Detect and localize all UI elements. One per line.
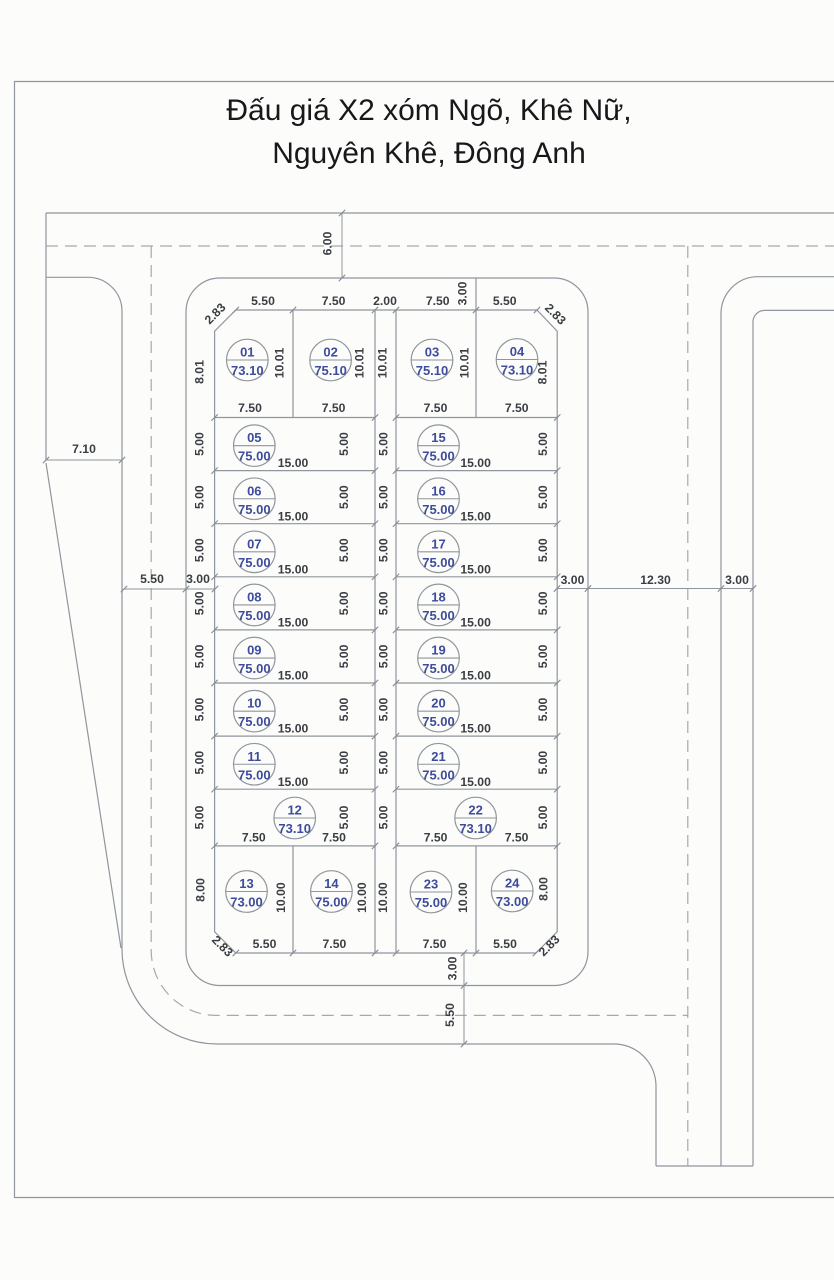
svg-text:17: 17 xyxy=(431,536,445,551)
svg-text:7.50: 7.50 xyxy=(426,294,450,308)
svg-text:2.00: 2.00 xyxy=(373,294,397,308)
svg-text:5.00: 5.00 xyxy=(376,751,390,775)
svg-text:5.00: 5.00 xyxy=(536,644,550,668)
svg-text:75.00: 75.00 xyxy=(238,555,271,570)
svg-text:73.10: 73.10 xyxy=(278,821,311,836)
svg-text:5.50: 5.50 xyxy=(140,572,164,586)
svg-text:2.83: 2.83 xyxy=(202,300,229,327)
svg-text:7.50: 7.50 xyxy=(323,937,347,951)
svg-text:05: 05 xyxy=(247,430,261,445)
svg-text:73.00: 73.00 xyxy=(230,895,263,910)
svg-text:7.50: 7.50 xyxy=(322,831,346,845)
svg-text:5.00: 5.00 xyxy=(536,751,550,775)
svg-text:5.00: 5.00 xyxy=(536,485,550,509)
svg-text:5.00: 5.00 xyxy=(536,805,550,829)
svg-text:5.00: 5.00 xyxy=(337,751,351,775)
svg-text:5.50: 5.50 xyxy=(253,937,277,951)
svg-text:5.00: 5.00 xyxy=(376,805,390,829)
svg-text:07: 07 xyxy=(247,536,261,551)
svg-text:5.00: 5.00 xyxy=(337,697,351,721)
svg-text:75.00: 75.00 xyxy=(238,714,271,729)
svg-text:73.10: 73.10 xyxy=(501,363,534,378)
svg-text:75.00: 75.00 xyxy=(422,555,455,570)
svg-text:2.83: 2.83 xyxy=(536,932,563,959)
svg-text:7.50: 7.50 xyxy=(424,401,448,415)
svg-text:2.83: 2.83 xyxy=(209,933,236,960)
svg-text:73.00: 73.00 xyxy=(496,894,529,909)
svg-text:6.00: 6.00 xyxy=(321,231,335,255)
svg-text:75.10: 75.10 xyxy=(416,363,449,378)
svg-text:5.00: 5.00 xyxy=(376,644,390,668)
svg-text:18: 18 xyxy=(431,589,445,604)
svg-text:12.30: 12.30 xyxy=(640,573,671,587)
svg-text:5.50: 5.50 xyxy=(251,294,275,308)
svg-text:5.00: 5.00 xyxy=(376,697,390,721)
svg-text:5.00: 5.00 xyxy=(337,644,351,668)
svg-text:01: 01 xyxy=(240,345,254,360)
svg-text:7.50: 7.50 xyxy=(242,831,266,845)
svg-text:75.00: 75.00 xyxy=(315,895,348,910)
svg-text:75.00: 75.00 xyxy=(422,608,455,623)
svg-text:5.00: 5.00 xyxy=(193,432,207,456)
svg-text:7.10: 7.10 xyxy=(72,442,96,456)
svg-text:Đấu giá X2 xóm Ngõ, Khê Nữ,: Đấu giá X2 xóm Ngõ, Khê Nữ, xyxy=(226,94,631,127)
svg-text:15.00: 15.00 xyxy=(278,722,309,736)
svg-text:75.00: 75.00 xyxy=(238,502,271,517)
svg-text:75.00: 75.00 xyxy=(238,449,271,464)
svg-text:75.00: 75.00 xyxy=(238,767,271,782)
svg-text:7.50: 7.50 xyxy=(322,294,346,308)
svg-text:8.01: 8.01 xyxy=(536,360,550,384)
svg-text:16: 16 xyxy=(431,483,445,498)
svg-text:10.01: 10.01 xyxy=(376,348,390,379)
svg-text:15.00: 15.00 xyxy=(278,509,309,523)
svg-text:7.50: 7.50 xyxy=(322,401,346,415)
svg-text:75.10: 75.10 xyxy=(314,363,347,378)
svg-text:20: 20 xyxy=(431,696,445,711)
svg-text:73.10: 73.10 xyxy=(459,821,492,836)
svg-text:24: 24 xyxy=(505,876,520,891)
svg-text:10.00: 10.00 xyxy=(355,882,369,913)
svg-text:5.50: 5.50 xyxy=(493,294,517,308)
svg-text:5.00: 5.00 xyxy=(193,591,207,615)
svg-text:15.00: 15.00 xyxy=(460,775,491,789)
svg-text:5.00: 5.00 xyxy=(536,538,550,562)
svg-text:08: 08 xyxy=(247,589,261,604)
svg-text:15.00: 15.00 xyxy=(278,562,309,576)
svg-text:5.00: 5.00 xyxy=(193,697,207,721)
svg-text:Nguyên Khê, Đông Anh: Nguyên Khê, Đông Anh xyxy=(272,137,586,170)
svg-text:5.00: 5.00 xyxy=(536,432,550,456)
svg-text:75.00: 75.00 xyxy=(238,661,271,676)
svg-text:8.00: 8.00 xyxy=(194,878,208,902)
svg-text:75.00: 75.00 xyxy=(422,767,455,782)
svg-text:7.50: 7.50 xyxy=(505,831,529,845)
svg-text:75.00: 75.00 xyxy=(415,895,448,910)
svg-text:5.00: 5.00 xyxy=(337,805,351,829)
svg-text:5.50: 5.50 xyxy=(493,937,517,951)
svg-text:3.00: 3.00 xyxy=(186,572,210,586)
svg-text:5.00: 5.00 xyxy=(376,432,390,456)
svg-text:2.83: 2.83 xyxy=(542,301,569,328)
svg-text:13: 13 xyxy=(239,876,253,891)
svg-text:19: 19 xyxy=(431,643,445,658)
svg-text:75.00: 75.00 xyxy=(238,608,271,623)
svg-text:14: 14 xyxy=(324,876,339,891)
svg-text:03: 03 xyxy=(425,345,439,360)
svg-text:15: 15 xyxy=(431,430,445,445)
svg-text:8.01: 8.01 xyxy=(193,360,207,384)
svg-text:22: 22 xyxy=(468,803,482,818)
svg-text:7.50: 7.50 xyxy=(423,937,447,951)
svg-text:15.00: 15.00 xyxy=(460,669,491,683)
svg-text:12: 12 xyxy=(287,803,301,818)
svg-text:02: 02 xyxy=(323,345,337,360)
svg-text:5.00: 5.00 xyxy=(193,485,207,509)
svg-text:5.00: 5.00 xyxy=(376,538,390,562)
svg-text:5.00: 5.00 xyxy=(337,591,351,615)
svg-text:8.00: 8.00 xyxy=(536,877,550,901)
svg-text:10.00: 10.00 xyxy=(274,882,288,913)
svg-text:15.00: 15.00 xyxy=(460,456,491,470)
svg-text:15.00: 15.00 xyxy=(460,616,491,630)
svg-text:75.00: 75.00 xyxy=(422,502,455,517)
svg-text:5.00: 5.00 xyxy=(536,697,550,721)
svg-text:75.00: 75.00 xyxy=(422,449,455,464)
svg-text:3.00: 3.00 xyxy=(725,573,749,587)
svg-text:06: 06 xyxy=(247,483,261,498)
svg-text:04: 04 xyxy=(510,344,525,359)
svg-text:10.01: 10.01 xyxy=(272,348,286,379)
svg-text:5.00: 5.00 xyxy=(536,591,550,615)
svg-text:10: 10 xyxy=(247,696,261,711)
svg-text:10.00: 10.00 xyxy=(456,882,470,913)
svg-text:5.00: 5.00 xyxy=(337,432,351,456)
svg-text:3.00: 3.00 xyxy=(456,281,470,305)
svg-text:5.00: 5.00 xyxy=(193,538,207,562)
svg-text:5.00: 5.00 xyxy=(376,485,390,509)
svg-text:3.00: 3.00 xyxy=(446,956,460,980)
svg-text:15.00: 15.00 xyxy=(278,775,309,789)
svg-text:10.01: 10.01 xyxy=(352,348,366,379)
svg-text:5.00: 5.00 xyxy=(193,805,207,829)
svg-text:75.00: 75.00 xyxy=(422,661,455,676)
svg-text:5.00: 5.00 xyxy=(337,538,351,562)
svg-text:73.10: 73.10 xyxy=(231,363,264,378)
svg-text:3.00: 3.00 xyxy=(561,573,585,587)
svg-text:5.00: 5.00 xyxy=(193,751,207,775)
svg-text:11: 11 xyxy=(247,749,261,764)
svg-text:5.00: 5.00 xyxy=(376,591,390,615)
svg-text:5.50: 5.50 xyxy=(443,1003,457,1027)
svg-text:7.50: 7.50 xyxy=(424,831,448,845)
svg-text:7.50: 7.50 xyxy=(238,401,262,415)
svg-text:09: 09 xyxy=(247,643,261,658)
svg-text:75.00: 75.00 xyxy=(422,714,455,729)
svg-text:5.00: 5.00 xyxy=(337,485,351,509)
svg-text:7.50: 7.50 xyxy=(505,401,529,415)
svg-text:15.00: 15.00 xyxy=(460,722,491,736)
svg-text:15.00: 15.00 xyxy=(278,616,309,630)
svg-text:21: 21 xyxy=(431,749,445,764)
svg-text:15.00: 15.00 xyxy=(278,456,309,470)
svg-text:10.01: 10.01 xyxy=(458,348,472,379)
svg-text:15.00: 15.00 xyxy=(278,669,309,683)
svg-text:15.00: 15.00 xyxy=(460,509,491,523)
svg-text:5.00: 5.00 xyxy=(193,644,207,668)
svg-text:15.00: 15.00 xyxy=(460,562,491,576)
svg-text:10.00: 10.00 xyxy=(376,882,390,913)
svg-text:23: 23 xyxy=(424,877,438,892)
